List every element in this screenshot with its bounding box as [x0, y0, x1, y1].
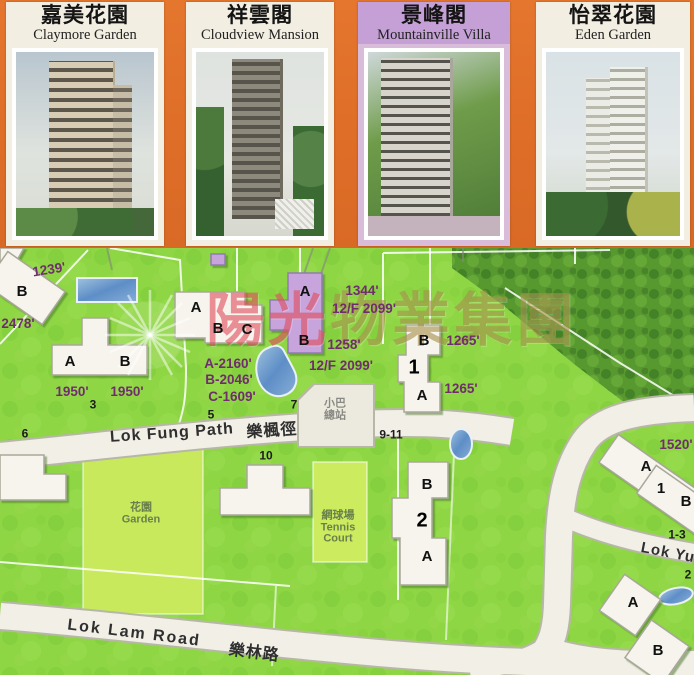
block-label-topleft-b: B — [17, 284, 28, 300]
lot-number-3: 3 — [90, 399, 97, 412]
building-photo — [542, 48, 684, 240]
card-title-box: 景峰閣 Mountainville Villa — [358, 2, 510, 44]
measurement-b2046: B-2046' — [205, 373, 253, 387]
block-label-cloudview-a: A — [191, 300, 202, 316]
block-label-cloudview-b: B — [213, 321, 224, 337]
measurement-2478: 2478' — [1, 317, 34, 331]
measurement-1950-b: 1950' — [110, 385, 143, 399]
estate-map-page: 嘉美花園 Claymore Garden 祥雲閣 Cloudview Mansi… — [0, 0, 694, 675]
watermark-starburst — [105, 290, 195, 380]
measurement-2099-b: 12/F 2099' — [309, 359, 373, 373]
block-label-cloudview-c: C — [242, 322, 253, 338]
building-photo — [364, 48, 504, 240]
photo-strip: 嘉美花園 Claymore Garden 祥雲閣 Cloudview Mansi… — [0, 0, 694, 248]
block-label-blk1-1: 1 — [408, 358, 419, 379]
block-label-blk2-2: 2 — [416, 511, 427, 532]
measurement-1265-a: 1265' — [446, 334, 479, 348]
card-title-box: 怡翠花園 Eden Garden — [536, 2, 690, 44]
tower-wing — [113, 85, 132, 212]
bldg-small-purple — [211, 254, 225, 265]
block-label-claymore-b: B — [120, 354, 131, 370]
card-claymore-garden: 嘉美花園 Claymore Garden — [6, 2, 164, 246]
tower-silhouette — [49, 61, 112, 212]
building-name-zh: 祥雲閣 — [186, 2, 334, 27]
measurement-1950-a: 1950' — [55, 385, 88, 399]
garden-area — [83, 442, 203, 614]
lot-number-2: 2 — [685, 569, 692, 582]
block-label-mountainville-a: A — [300, 284, 311, 300]
lot-number-9-11: 9-11 — [379, 429, 402, 442]
building-photo — [12, 48, 158, 240]
measurement-1258: 1258' — [327, 338, 360, 352]
tennis-label-en2: Court — [321, 534, 356, 546]
block-label-claymore-a: A — [65, 354, 76, 370]
block-label-blk1-b: B — [419, 333, 430, 349]
tennis-court-label: 網球場 Tennis Court — [321, 511, 356, 546]
block-label-blk1-a: A — [417, 388, 428, 404]
building-name-zh: 怡翠花園 — [536, 2, 690, 27]
building-name-en: Mountainville Villa — [358, 27, 510, 44]
building-name-zh: 嘉美花園 — [6, 2, 164, 27]
tree-left — [196, 107, 224, 236]
tower-silhouette — [232, 59, 281, 219]
garden-label-en: Garden — [122, 514, 161, 526]
block-label-se-b: B — [653, 643, 664, 659]
measurement-c1609: C-1609' — [208, 390, 256, 404]
block-label-blk2-b: B — [422, 477, 433, 493]
card-mountainville-villa: 景峰閣 Mountainville Villa — [358, 2, 510, 246]
tower-silhouette-front — [610, 67, 645, 207]
swimming-pool — [77, 278, 137, 302]
lot-number-6: 6 — [22, 428, 29, 441]
measurement-1265-b: 1265' — [444, 382, 477, 396]
site-map: 陽光物業集團 B 1239' 2478' A B 1950' 1950' 3 A… — [0, 248, 694, 675]
building-name-en: Claymore Garden — [6, 27, 164, 44]
minibus-terminus-label: 小巴 總站 — [324, 398, 346, 421]
foliage — [16, 208, 154, 236]
card-title-box: 祥雲閣 Cloudview Mansion — [186, 2, 334, 44]
building-name-en: Cloudview Mansion — [186, 27, 334, 44]
card-title-box: 嘉美花園 Claymore Garden — [6, 2, 164, 44]
measurement-2099-a: 12/F 2099' — [332, 302, 396, 316]
garden-label: 花園 Garden — [122, 502, 161, 525]
block-label-blk2-a: A — [422, 549, 433, 565]
watermark-part1: 陽光 — [206, 288, 330, 353]
lot-number-10: 10 — [259, 450, 272, 463]
lattice-fence — [275, 199, 313, 228]
card-eden-garden: 怡翠花園 Eden Garden — [536, 2, 690, 246]
tennis-label-zh: 網球場 — [321, 511, 356, 523]
block-label-se-a: A — [628, 595, 639, 611]
tower-silhouette — [381, 58, 450, 216]
card-cloudview-mansion: 祥雲閣 Cloudview Mansion — [186, 2, 334, 246]
measurement-a2160: A-2160' — [204, 357, 252, 371]
pond-block1 — [450, 429, 472, 459]
lot-number-7: 7 — [291, 399, 298, 412]
building-name-en: Eden Garden — [536, 27, 690, 44]
measurement-1520: 1520' — [659, 438, 692, 452]
block-label-eden-a: A — [641, 459, 652, 475]
road-label-lok-fung-zh: 樂楓徑 — [246, 422, 298, 442]
building-name-zh: 景峰閣 — [358, 2, 510, 27]
building-photo — [192, 48, 328, 240]
block-label-eden-1: 1 — [657, 481, 665, 497]
block-label-eden-b: B — [681, 494, 692, 510]
lot-number-1-3: 1-3 — [668, 529, 685, 542]
minibus-line1: 小巴 — [324, 398, 346, 410]
ground-path — [368, 216, 500, 236]
garden-label-zh: 花園 — [122, 502, 161, 514]
block-label-mountainville-b: B — [299, 333, 310, 349]
minibus-line2: 總站 — [324, 410, 346, 422]
foliage — [546, 192, 680, 236]
lot-number-5: 5 — [208, 409, 215, 422]
measurement-1344: 1344' — [345, 284, 378, 298]
